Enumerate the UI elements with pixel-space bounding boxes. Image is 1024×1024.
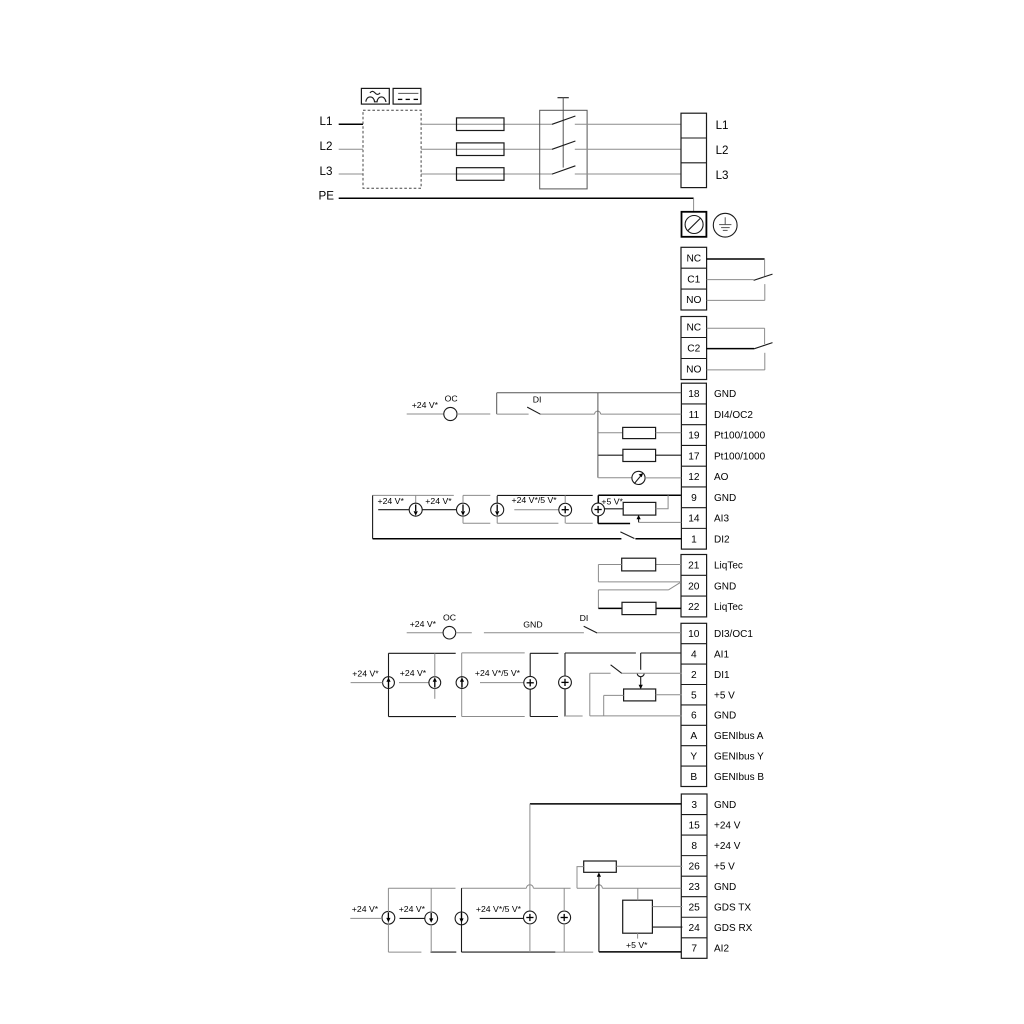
svg-text:GENIbus A: GENIbus A: [714, 731, 764, 742]
svg-text:NO: NO: [686, 295, 701, 306]
svg-text:NC: NC: [686, 323, 701, 334]
svg-text:GDS TX: GDS TX: [714, 903, 751, 914]
svg-text:+5 V: +5 V: [714, 690, 735, 701]
svg-text:22: 22: [688, 602, 700, 613]
svg-text:+24 V*: +24 V*: [400, 668, 427, 678]
svg-text:+5 V*: +5 V*: [626, 940, 648, 950]
svg-text:4: 4: [691, 650, 697, 661]
svg-text:C1: C1: [687, 274, 700, 285]
svg-text:+24 V*: +24 V*: [425, 496, 452, 506]
svg-text:GDS RX: GDS RX: [714, 923, 753, 934]
svg-text:OC: OC: [445, 394, 458, 404]
svg-text:+24 V*/5 V*: +24 V*/5 V*: [476, 904, 522, 914]
svg-text:5: 5: [691, 690, 697, 701]
svg-text:24: 24: [688, 923, 700, 934]
svg-text:3: 3: [691, 800, 697, 811]
svg-text:+24 V: +24 V: [714, 841, 741, 852]
svg-text:2: 2: [691, 670, 697, 681]
svg-text:OC: OC: [443, 613, 456, 623]
svg-text:LiqTec: LiqTec: [714, 602, 743, 613]
svg-text:+5 V: +5 V: [714, 861, 735, 872]
svg-text:+24 V*: +24 V*: [352, 668, 379, 678]
svg-text:14: 14: [688, 514, 700, 525]
svg-text:23: 23: [688, 882, 700, 893]
svg-text:+24 V*/5 V*: +24 V*/5 V*: [512, 495, 558, 505]
svg-text:GND: GND: [714, 800, 736, 811]
svg-text:AO: AO: [714, 472, 729, 483]
svg-text:C2: C2: [687, 344, 700, 355]
svg-text:25: 25: [688, 903, 700, 914]
svg-text:17: 17: [688, 451, 700, 462]
svg-text:GND: GND: [714, 711, 736, 722]
svg-text:GND: GND: [714, 581, 736, 592]
svg-text:+24 V*: +24 V*: [352, 904, 379, 914]
svg-text:L3: L3: [320, 165, 333, 178]
svg-text:DI: DI: [580, 613, 589, 623]
svg-text:9: 9: [691, 493, 697, 504]
svg-text:DI1: DI1: [714, 670, 730, 681]
svg-text:19: 19: [688, 431, 700, 442]
svg-text:Pt100/1000: Pt100/1000: [714, 451, 766, 462]
svg-text:1: 1: [691, 534, 697, 545]
svg-text:+24 V*: +24 V*: [412, 400, 439, 410]
svg-text:8: 8: [691, 841, 697, 852]
svg-text:L1: L1: [320, 115, 333, 128]
svg-text:GND: GND: [714, 882, 736, 893]
svg-text:L1: L1: [716, 119, 729, 132]
svg-text:PE: PE: [319, 190, 335, 203]
svg-text:DI4/OC2: DI4/OC2: [714, 410, 753, 421]
svg-text:LiqTec: LiqTec: [714, 561, 743, 572]
svg-text:+24 V*: +24 V*: [399, 904, 426, 914]
svg-text:L3: L3: [716, 169, 729, 182]
svg-text:15: 15: [688, 820, 700, 831]
svg-text:26: 26: [688, 861, 700, 872]
svg-text:10: 10: [688, 629, 700, 640]
svg-text:GND: GND: [714, 493, 736, 504]
svg-text:GND: GND: [714, 389, 736, 400]
svg-text:DI: DI: [533, 394, 542, 404]
svg-text:L2: L2: [716, 144, 729, 157]
svg-text:Y: Y: [690, 752, 697, 763]
svg-text:20: 20: [688, 581, 700, 592]
svg-text:11: 11: [689, 410, 700, 421]
svg-text:+5 V*: +5 V*: [601, 496, 623, 506]
svg-text:B: B: [690, 772, 697, 783]
svg-text:AI2: AI2: [714, 944, 729, 955]
svg-text:+24 V: +24 V: [714, 820, 741, 831]
svg-text:18: 18: [688, 389, 700, 400]
svg-text:NO: NO: [686, 365, 701, 376]
svg-text:6: 6: [691, 711, 697, 722]
svg-text:DI2: DI2: [714, 534, 730, 545]
svg-text:DI3/OC1: DI3/OC1: [714, 629, 753, 640]
svg-text:AI3: AI3: [714, 514, 729, 525]
svg-text:L2: L2: [320, 140, 333, 153]
svg-text:GENIbus Y: GENIbus Y: [714, 752, 764, 763]
svg-text:7: 7: [691, 944, 697, 955]
svg-text:GENIbus B: GENIbus B: [714, 772, 764, 783]
svg-text:AI1: AI1: [714, 650, 729, 661]
svg-text:NC: NC: [686, 253, 701, 264]
svg-text:+24 V*/5 V*: +24 V*/5 V*: [475, 668, 521, 678]
svg-text:GND: GND: [523, 620, 542, 630]
svg-text:12: 12: [688, 472, 700, 483]
svg-text:+24 V*: +24 V*: [410, 619, 437, 629]
svg-text:+24 V*: +24 V*: [378, 496, 405, 506]
svg-text:21: 21: [688, 561, 700, 572]
svg-text:A: A: [690, 731, 697, 742]
svg-text:Pt100/1000: Pt100/1000: [714, 431, 766, 442]
